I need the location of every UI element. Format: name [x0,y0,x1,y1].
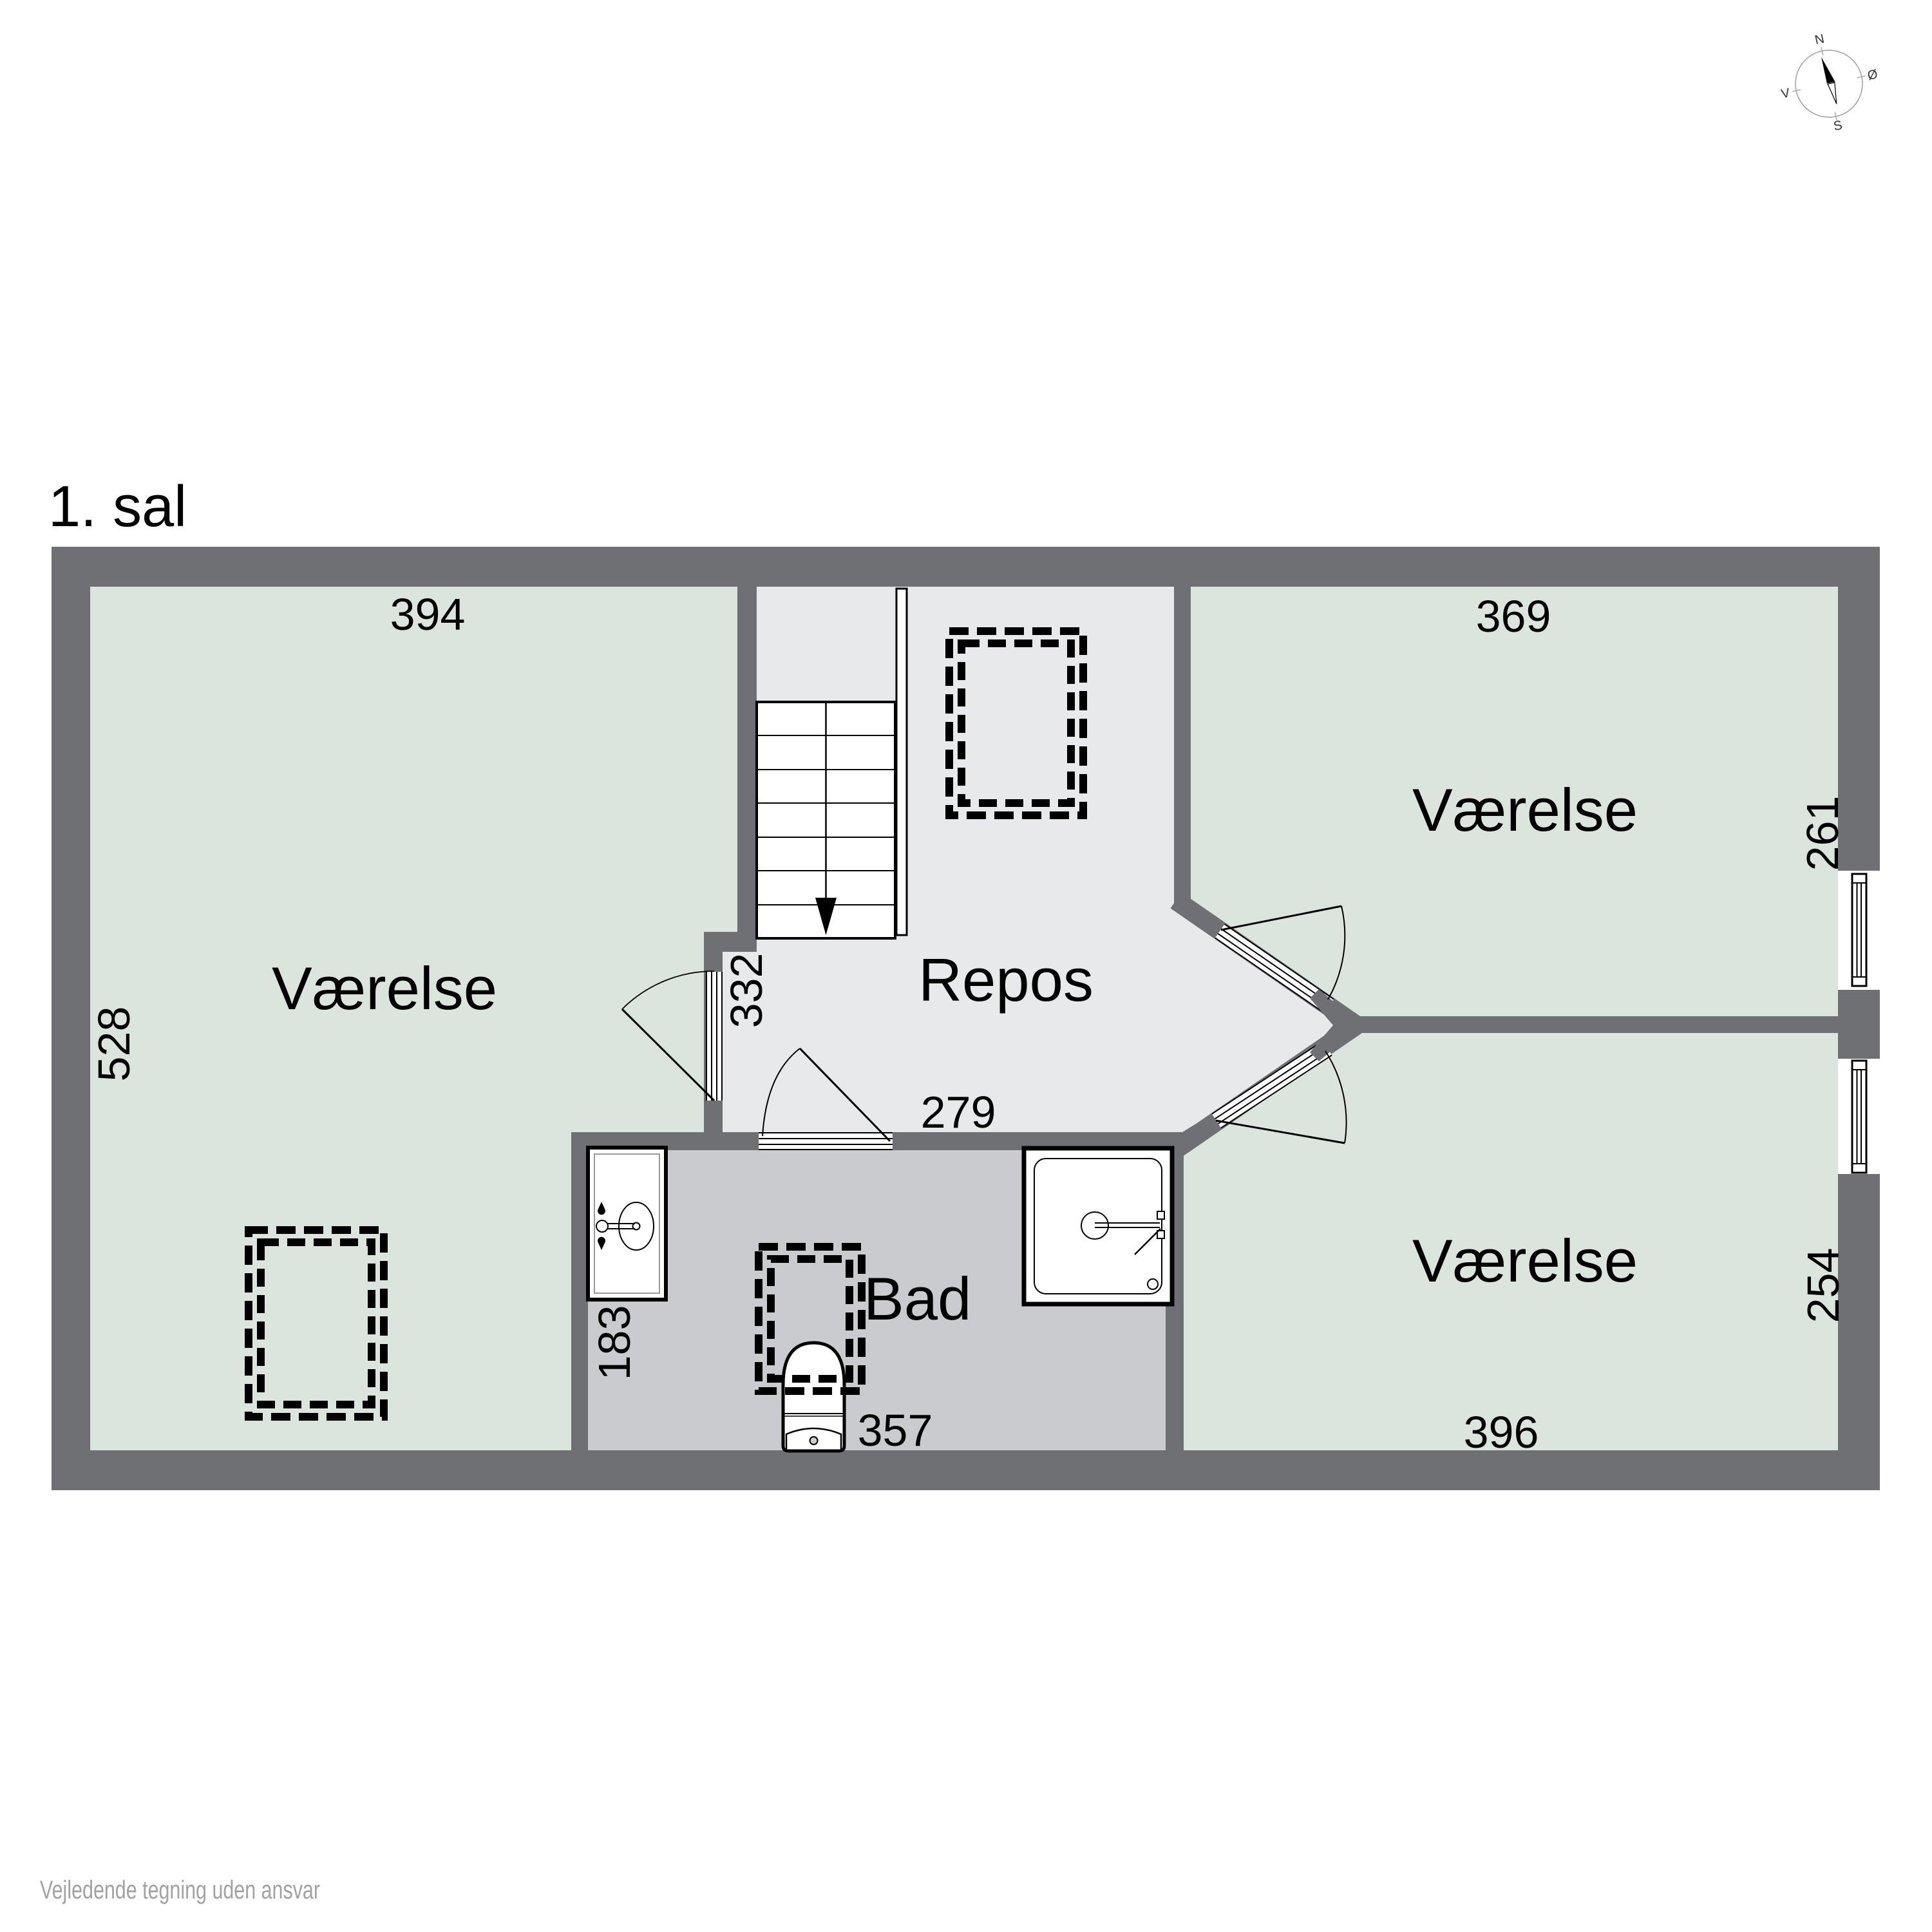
svg-text:332: 332 [721,953,772,1028]
svg-text:369: 369 [1476,591,1551,641]
svg-text:254: 254 [1798,1248,1848,1323]
svg-text:Repos: Repos [918,946,1094,1014]
svg-text:1. sal: 1. sal [48,475,187,539]
svg-text:Vejledende tegning uden ansvar: Vejledende tegning uden ansvar [40,1876,320,1904]
svg-text:394: 394 [390,589,466,639]
svg-text:279: 279 [921,1087,996,1137]
svg-text:528: 528 [89,1007,139,1082]
svg-text:261: 261 [1797,796,1848,871]
svg-text:Værelse: Værelse [272,954,497,1022]
svg-text:Bad: Bad [864,1265,971,1332]
svg-text:396: 396 [1464,1407,1539,1457]
svg-text:183: 183 [589,1305,639,1381]
svg-text:Værelse: Værelse [1412,776,1638,844]
svg-text:Værelse: Værelse [1412,1227,1638,1294]
svg-text:357: 357 [858,1405,933,1455]
